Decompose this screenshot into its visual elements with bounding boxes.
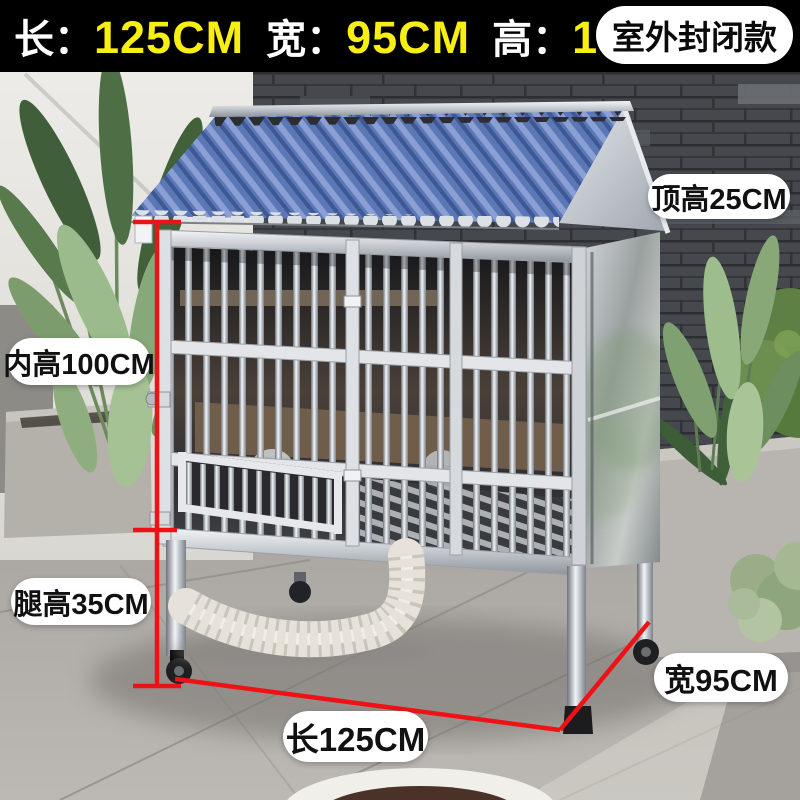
leg-height-label: 腿高35CM <box>11 578 151 625</box>
interior-contents <box>160 240 590 570</box>
wheel-hub <box>174 666 184 676</box>
stone-block-light <box>738 84 800 104</box>
height-label: 高： <box>492 7 572 65</box>
width-spec: 宽： 95CM <box>266 7 470 65</box>
wheel-hub <box>641 647 651 657</box>
width-label-pill: 宽95CM <box>654 653 788 702</box>
width-label: 宽： <box>266 7 346 65</box>
length-spec: 长： 125CM <box>14 7 244 65</box>
hinge <box>344 470 361 481</box>
front-bars <box>160 240 590 570</box>
width-value: 95CM <box>346 12 470 64</box>
hinge <box>344 296 361 307</box>
roof <box>131 101 668 243</box>
roof-height-label: 顶高25CM <box>648 174 790 219</box>
door-stile <box>346 240 359 546</box>
length-label-pill: 长125CM <box>283 711 428 762</box>
center-post <box>450 243 462 555</box>
product-image: 长： 125CM 宽： 95CM 高： 160CM 室外封闭款 顶高25CM 内… <box>0 0 800 800</box>
variant-badge: 室外封闭款 <box>596 6 793 64</box>
inner-height-label: 内高100CM <box>8 338 150 385</box>
length-label: 长： <box>14 7 94 65</box>
length-value: 125CM <box>94 12 244 64</box>
right-post <box>572 247 586 565</box>
middle-wheel <box>289 581 311 603</box>
front-right-leg <box>567 566 586 712</box>
